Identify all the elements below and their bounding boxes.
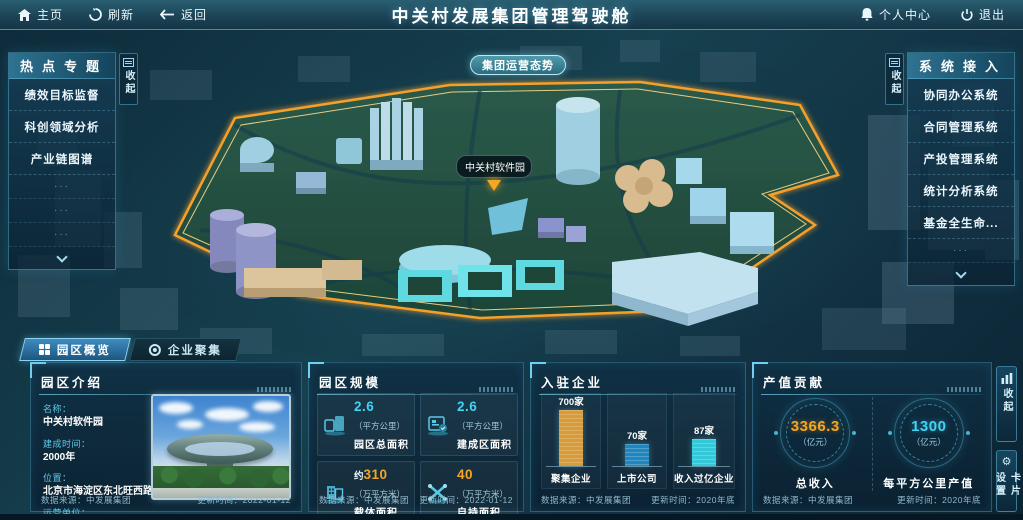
collapse-icon xyxy=(123,58,134,67)
system-item-contract[interactable]: 合同管理系统 xyxy=(908,111,1014,143)
grid-icon xyxy=(39,344,50,355)
tab-enterprise-cluster[interactable]: 企业聚集 xyxy=(129,338,242,361)
scale-card-built-area[interactable]: 2.6 （平方公里） 建成区面积 xyxy=(420,393,518,456)
hot-topic-item-scitech[interactable]: 科创领域分析 xyxy=(9,111,115,143)
buildings-icon xyxy=(323,414,347,436)
bar-axis xyxy=(612,466,662,467)
bar-axis xyxy=(546,466,596,467)
bar-label: 上市公司 xyxy=(617,471,657,485)
gauge-output-per-sqkm[interactable]: 1300 （亿元） 每平方公里产值 xyxy=(872,397,986,491)
stat-value: 2.6 xyxy=(354,399,374,414)
stat-prefix: 约 xyxy=(354,471,364,482)
map-pin-icon xyxy=(487,180,501,191)
stat-unit: （平方公里） xyxy=(457,421,508,431)
gauge-value: 1300 xyxy=(911,418,946,435)
hot-topics-expand-button[interactable] xyxy=(9,247,115,269)
scale-card-self-held-area[interactable]: 40 （万平方米） 自持面积 xyxy=(420,461,518,520)
personal-center-button[interactable]: 个人中心 xyxy=(861,6,931,23)
bar-column-listed[interactable]: 70家 上市公司 xyxy=(607,393,667,489)
hot-topic-item-industry-chain[interactable]: 产业链图谱 xyxy=(9,143,115,175)
header-decoration xyxy=(947,387,981,392)
scale-card-total-area[interactable]: 2.6 （平方公里） 园区总面积 xyxy=(317,393,415,456)
header-decoration xyxy=(479,387,513,392)
park-scale-title: 园区规模 xyxy=(309,363,523,395)
bar-column-cluster[interactable]: 700家 聚集企业 xyxy=(541,393,601,489)
document-icon xyxy=(426,414,450,436)
panels-collapse-button[interactable]: 收起 xyxy=(996,366,1017,442)
bottom-edge-strip xyxy=(0,514,1023,520)
system-item-investment[interactable]: 产投管理系统 xyxy=(908,143,1014,175)
bar-column-over-100m[interactable]: 87家 收入过亿企业 xyxy=(673,393,735,489)
stat-value: 2.6 xyxy=(457,399,477,414)
hot-topics-panel: 热点专题 绩效目标监督 科创领域分析 产业链图谱 ··· ··· ··· 收起 xyxy=(8,52,116,270)
gauge-total-revenue[interactable]: 3366.3 （亿元） 总收入 xyxy=(759,397,872,491)
back-arrow-icon xyxy=(160,9,175,20)
stat-unit: （平方公里） xyxy=(354,421,405,431)
refresh-icon xyxy=(89,8,102,21)
bar-axis xyxy=(678,466,730,467)
enterprises-title: 入驻企业 xyxy=(531,363,745,395)
home-icon xyxy=(18,9,31,21)
update-time: 更新时间：2022-01-12 xyxy=(420,494,513,506)
hot-topics-placeholder: ··· xyxy=(9,175,115,199)
stat-value: 40 xyxy=(457,467,473,482)
bar xyxy=(625,444,649,466)
stat-label: 园区总面积 xyxy=(354,436,409,451)
chevron-down-icon xyxy=(955,267,966,278)
gear-icon: ⚙ xyxy=(1002,457,1012,468)
update-time: 更新时间：2020年底 xyxy=(651,494,735,506)
gauge-value: 3366.3 xyxy=(791,418,840,435)
gauge-label: 总收入 xyxy=(796,475,835,491)
output-value-panel: 产值贡献 3366.3 （亿元） 总收入 1300 （亿元） 每平方公里产值 xyxy=(752,362,992,512)
update-time: 更新时间：2022-01-12 xyxy=(198,494,291,506)
map-canvas xyxy=(0,30,1023,360)
scale-card-carrier-area[interactable]: 约310（万平方米） 载体面积 xyxy=(317,461,415,520)
update-time: 更新时间：2020年底 xyxy=(897,494,981,506)
output-gauges: 3366.3 （亿元） 总收入 1300 （亿元） 每平方公里产值 xyxy=(759,397,985,491)
ring-building xyxy=(167,434,273,464)
bar-value: 87家 xyxy=(694,423,714,437)
system-access-title: 系统接入 xyxy=(908,53,1014,79)
data-source: 数据来源：中发展集团 xyxy=(41,494,131,506)
system-item-statistics[interactable]: 统计分析系统 xyxy=(908,175,1014,207)
system-access-panel: 系统接入 协同办公系统 合同管理系统 产投管理系统 统计分析系统 基金全生命..… xyxy=(907,52,1015,286)
gauge-unit: （亿元） xyxy=(798,436,832,448)
target-icon xyxy=(149,344,161,356)
park-photo xyxy=(151,394,291,500)
header-decoration xyxy=(701,387,735,392)
park-scale-panel: 园区规模 2.6 （平方公里） 园区总面积 2.6 （平方公里） 建成区面积 约… xyxy=(308,362,524,512)
hot-topics-title: 热点专题 xyxy=(9,53,115,79)
enterprises-panel: 入驻企业 700家 聚集企业 70家 上市公司 87家 收入过亿企业 xyxy=(530,362,746,512)
power-icon xyxy=(961,9,973,21)
park-intro-title: 园区介绍 xyxy=(31,363,301,395)
dashboard-root: 集团运营态势 中关村软件园 主页 刷新 返回 中关村发展集团管理驾驶舱 xyxy=(0,0,1023,520)
card-settings-button[interactable]: ⚙ 卡片设置 xyxy=(996,450,1017,512)
bell-icon xyxy=(861,8,873,21)
park-3d-map[interactable]: 集团运营态势 中关村软件园 xyxy=(0,30,1023,360)
stat-label: 建成区面积 xyxy=(457,436,512,451)
bar xyxy=(692,439,716,466)
back-button[interactable]: 返回 xyxy=(160,6,207,23)
scale-cards: 2.6 （平方公里） 园区总面积 2.6 （平方公里） 建成区面积 约310（万… xyxy=(317,393,515,491)
system-access-collapse-button[interactable]: 收起 xyxy=(885,53,904,105)
system-item-fund[interactable]: 基金全生命... xyxy=(908,207,1014,239)
system-access-expand-button[interactable] xyxy=(908,263,1014,285)
header-decoration xyxy=(257,387,291,392)
marker-label: 中关村软件园 xyxy=(456,155,532,178)
bar-label: 聚集企业 xyxy=(551,471,591,485)
hot-topics-placeholder: ··· xyxy=(9,199,115,223)
data-source: 数据来源：中发展集团 xyxy=(319,494,409,506)
hot-topics-placeholder: ··· xyxy=(9,223,115,247)
data-source: 数据来源：中发展集团 xyxy=(541,494,631,506)
stat-value: 310 xyxy=(364,467,388,482)
enterprise-bar-chart: 700家 聚集企业 70家 上市公司 87家 收入过亿企业 xyxy=(541,393,735,489)
system-access-placeholder: ··· xyxy=(908,239,1014,263)
app-title: 中关村发展集团管理驾驶舱 xyxy=(392,2,632,27)
refresh-button[interactable]: 刷新 xyxy=(89,6,134,23)
gauge-label: 每平方公里产值 xyxy=(883,475,974,491)
gauge-ring: 1300 （亿元） xyxy=(894,398,964,468)
hot-topic-item-performance[interactable]: 绩效目标监督 xyxy=(9,79,115,111)
topbar: 主页 刷新 返回 中关村发展集团管理驾驶舱 个人中心 退出 xyxy=(0,0,1023,30)
park-map-marker[interactable]: 中关村软件园 xyxy=(456,155,532,191)
tab-park-overview[interactable]: 园区概览 xyxy=(19,338,131,361)
chevron-down-icon xyxy=(56,251,67,262)
hot-topics-collapse-button[interactable]: 收起 xyxy=(119,53,138,105)
gauge-ring: 3366.3 （亿元） xyxy=(780,398,850,468)
bar-value: 70家 xyxy=(627,428,647,442)
output-value-title: 产值贡献 xyxy=(753,363,991,395)
bar-chart-icon xyxy=(1001,373,1013,384)
logout-button[interactable]: 退出 xyxy=(961,6,1005,23)
park-intro-panel: 园区介绍 名称： 中关村软件园 建成时间： 2000年 位置： 北京市海淀区东北… xyxy=(30,362,302,512)
group-operations-button[interactable]: 集团运营态势 xyxy=(470,55,566,75)
gauge-unit: （亿元） xyxy=(912,436,946,448)
bar xyxy=(559,410,583,466)
collapse-icon xyxy=(889,58,900,67)
data-source: 数据来源：中发展集团 xyxy=(763,494,853,506)
trees xyxy=(153,466,289,488)
bar-label: 收入过亿企业 xyxy=(674,471,734,485)
bottom-tabs: 园区概览 企业聚集 xyxy=(22,338,239,361)
system-item-oa[interactable]: 协同办公系统 xyxy=(908,79,1014,111)
home-button[interactable]: 主页 xyxy=(18,6,63,23)
bar-value: 700家 xyxy=(558,394,583,408)
